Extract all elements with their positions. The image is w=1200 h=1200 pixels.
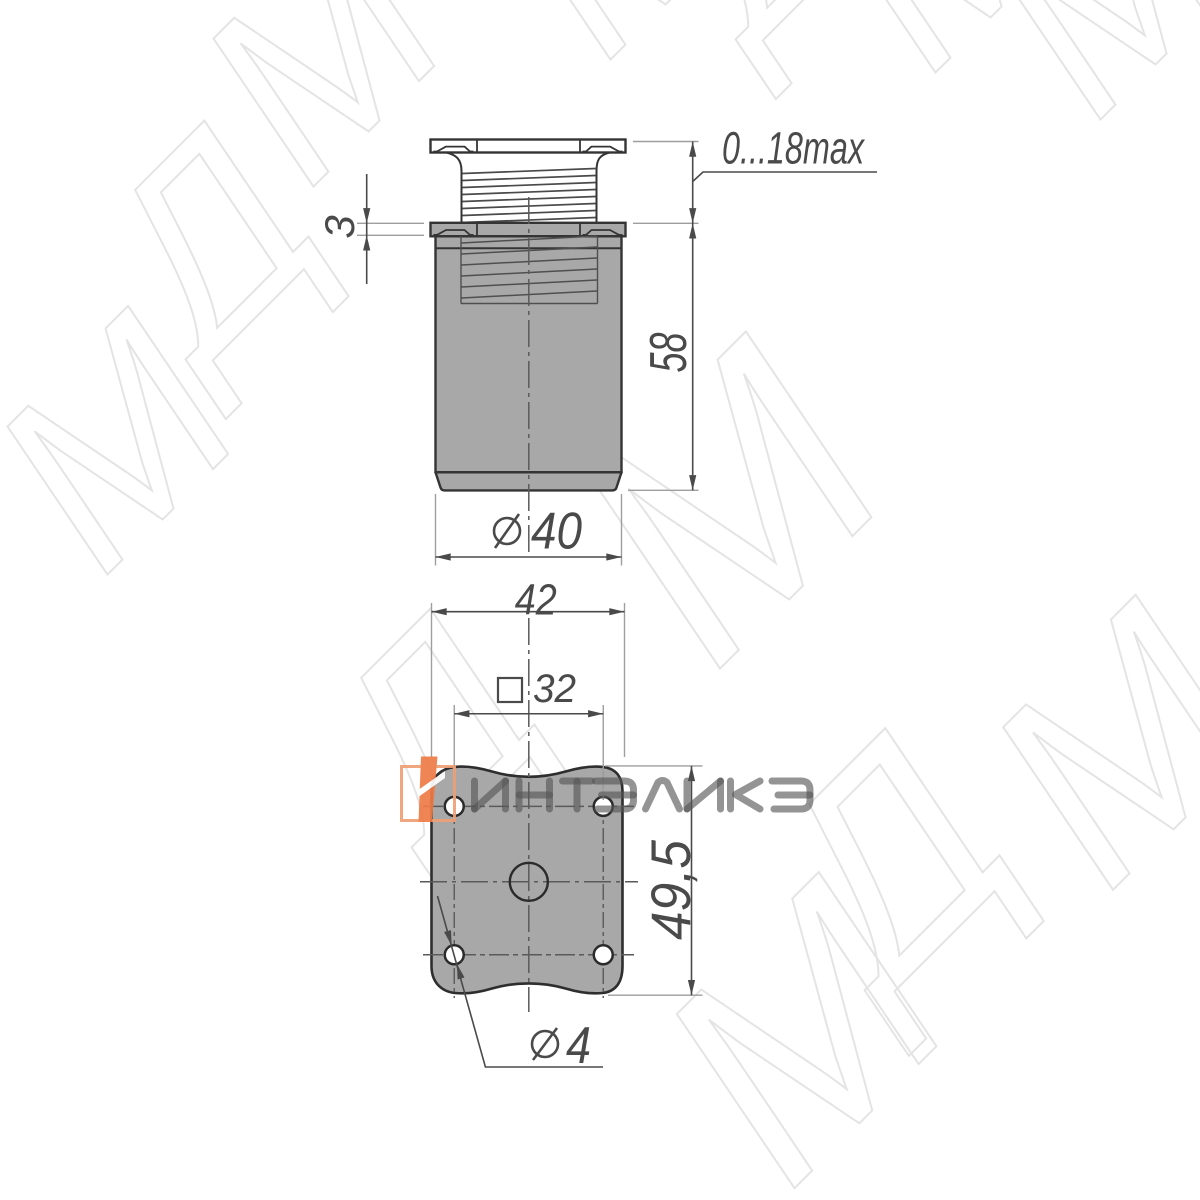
svg-text:4: 4 <box>566 1017 591 1075</box>
svg-text:0...18max: 0...18max <box>722 123 865 174</box>
svg-text:58: 58 <box>640 332 698 372</box>
svg-text:32: 32 <box>533 667 576 711</box>
svg-text:3: 3 <box>316 215 363 238</box>
svg-text:49,5: 49,5 <box>639 839 702 940</box>
svg-text:40: 40 <box>531 503 582 561</box>
svg-text:42: 42 <box>515 576 557 625</box>
